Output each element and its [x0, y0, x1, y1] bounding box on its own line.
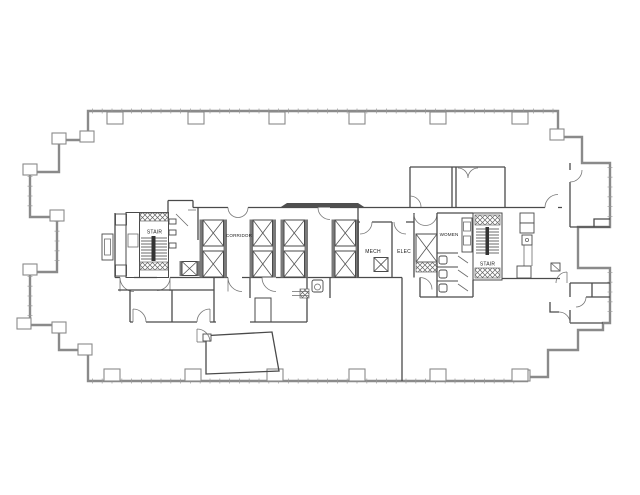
room-label-stair-left: STAIR	[147, 230, 163, 236]
room-label-elec: ELEC	[397, 249, 411, 255]
toilet-stalls	[437, 253, 468, 292]
mech-elec-rooms: MECH ELEC	[358, 208, 414, 278]
room-label-corridor: CORRIDOR	[226, 233, 253, 238]
stair-left-treads	[141, 236, 167, 261]
floor-plan-canvas: STAIR	[0, 0, 640, 495]
room-label-women: WOMEN	[440, 232, 459, 237]
lobby-soffit-band	[280, 203, 365, 208]
south-offices	[118, 278, 216, 323]
service-room	[168, 201, 200, 277]
bottom-right-rooms	[550, 272, 610, 323]
stair-right-treads	[476, 227, 499, 255]
stair-right-block: STAIR	[473, 213, 502, 280]
elevator-banks	[200, 220, 360, 278]
floor-plan-sheet: STAIR	[0, 0, 640, 495]
wall-panel	[102, 234, 113, 260]
south-restroom	[250, 278, 330, 323]
north-rooms	[410, 167, 505, 207]
top-right-room	[570, 163, 610, 227]
stair-left-block: STAIR	[102, 213, 169, 278]
room-label-stair-right: STAIR	[480, 262, 496, 268]
exterior-walls	[30, 111, 610, 381]
room-label-mech: MECH	[365, 249, 381, 255]
pantry-counter	[517, 213, 560, 278]
service-elevator	[414, 214, 437, 272]
skewed-room	[197, 329, 279, 374]
